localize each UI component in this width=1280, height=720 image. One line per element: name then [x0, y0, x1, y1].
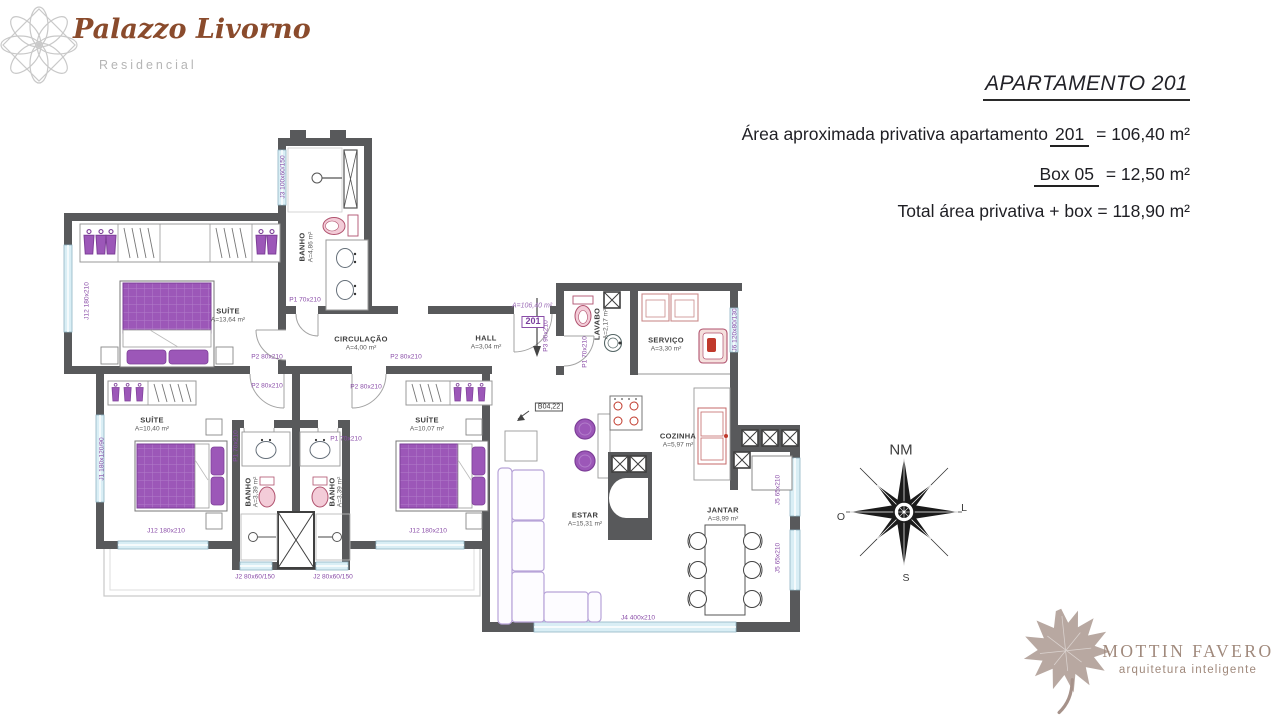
- area-line-underlined: 201: [1050, 124, 1089, 147]
- floorplan-page: { "header": { "logo": {"name": "Palazzo …: [0, 0, 1280, 720]
- area-line-total: Total área privativa + box = 118,90 m²: [898, 201, 1190, 222]
- floor-plan-canvas: [0, 0, 1280, 720]
- area-line-underlined: Box 05: [1034, 164, 1098, 187]
- compass-east-label: L: [961, 502, 967, 514]
- area-line-value: = 106,40 m²: [1096, 124, 1190, 144]
- architect-brand: MOTTIN FAVERO arquitetura inteligente: [1088, 641, 1280, 676]
- compass-south-label: S: [902, 572, 909, 584]
- flower-logo-icon: [1, 7, 77, 83]
- compass-rose-icon: [846, 458, 962, 566]
- compass-north-label: NM: [889, 442, 912, 459]
- area-line-apartment: Área aproximada privativa apartamento201…: [742, 124, 1190, 145]
- area-line-prefix: Área aproximada privativa apartamento: [742, 124, 1048, 144]
- brand-subtitle: Residencial: [99, 58, 197, 72]
- area-line-value: = 12,50 m²: [1106, 164, 1190, 184]
- architect-name: MOTTIN FAVERO: [1088, 641, 1280, 662]
- compass-west-label: O: [837, 511, 845, 523]
- area-line-box: Box 05 = 12,50 m²: [1032, 164, 1190, 185]
- brand-name: Palazzo Livorno: [73, 14, 311, 45]
- page-title: APARTAMENTO 201: [983, 72, 1190, 101]
- area-line-prefix: Total área privativa + box = 118,90 m²: [898, 201, 1190, 221]
- floor-plan: [64, 130, 800, 632]
- architect-tagline: arquitetura inteligente: [1088, 664, 1280, 676]
